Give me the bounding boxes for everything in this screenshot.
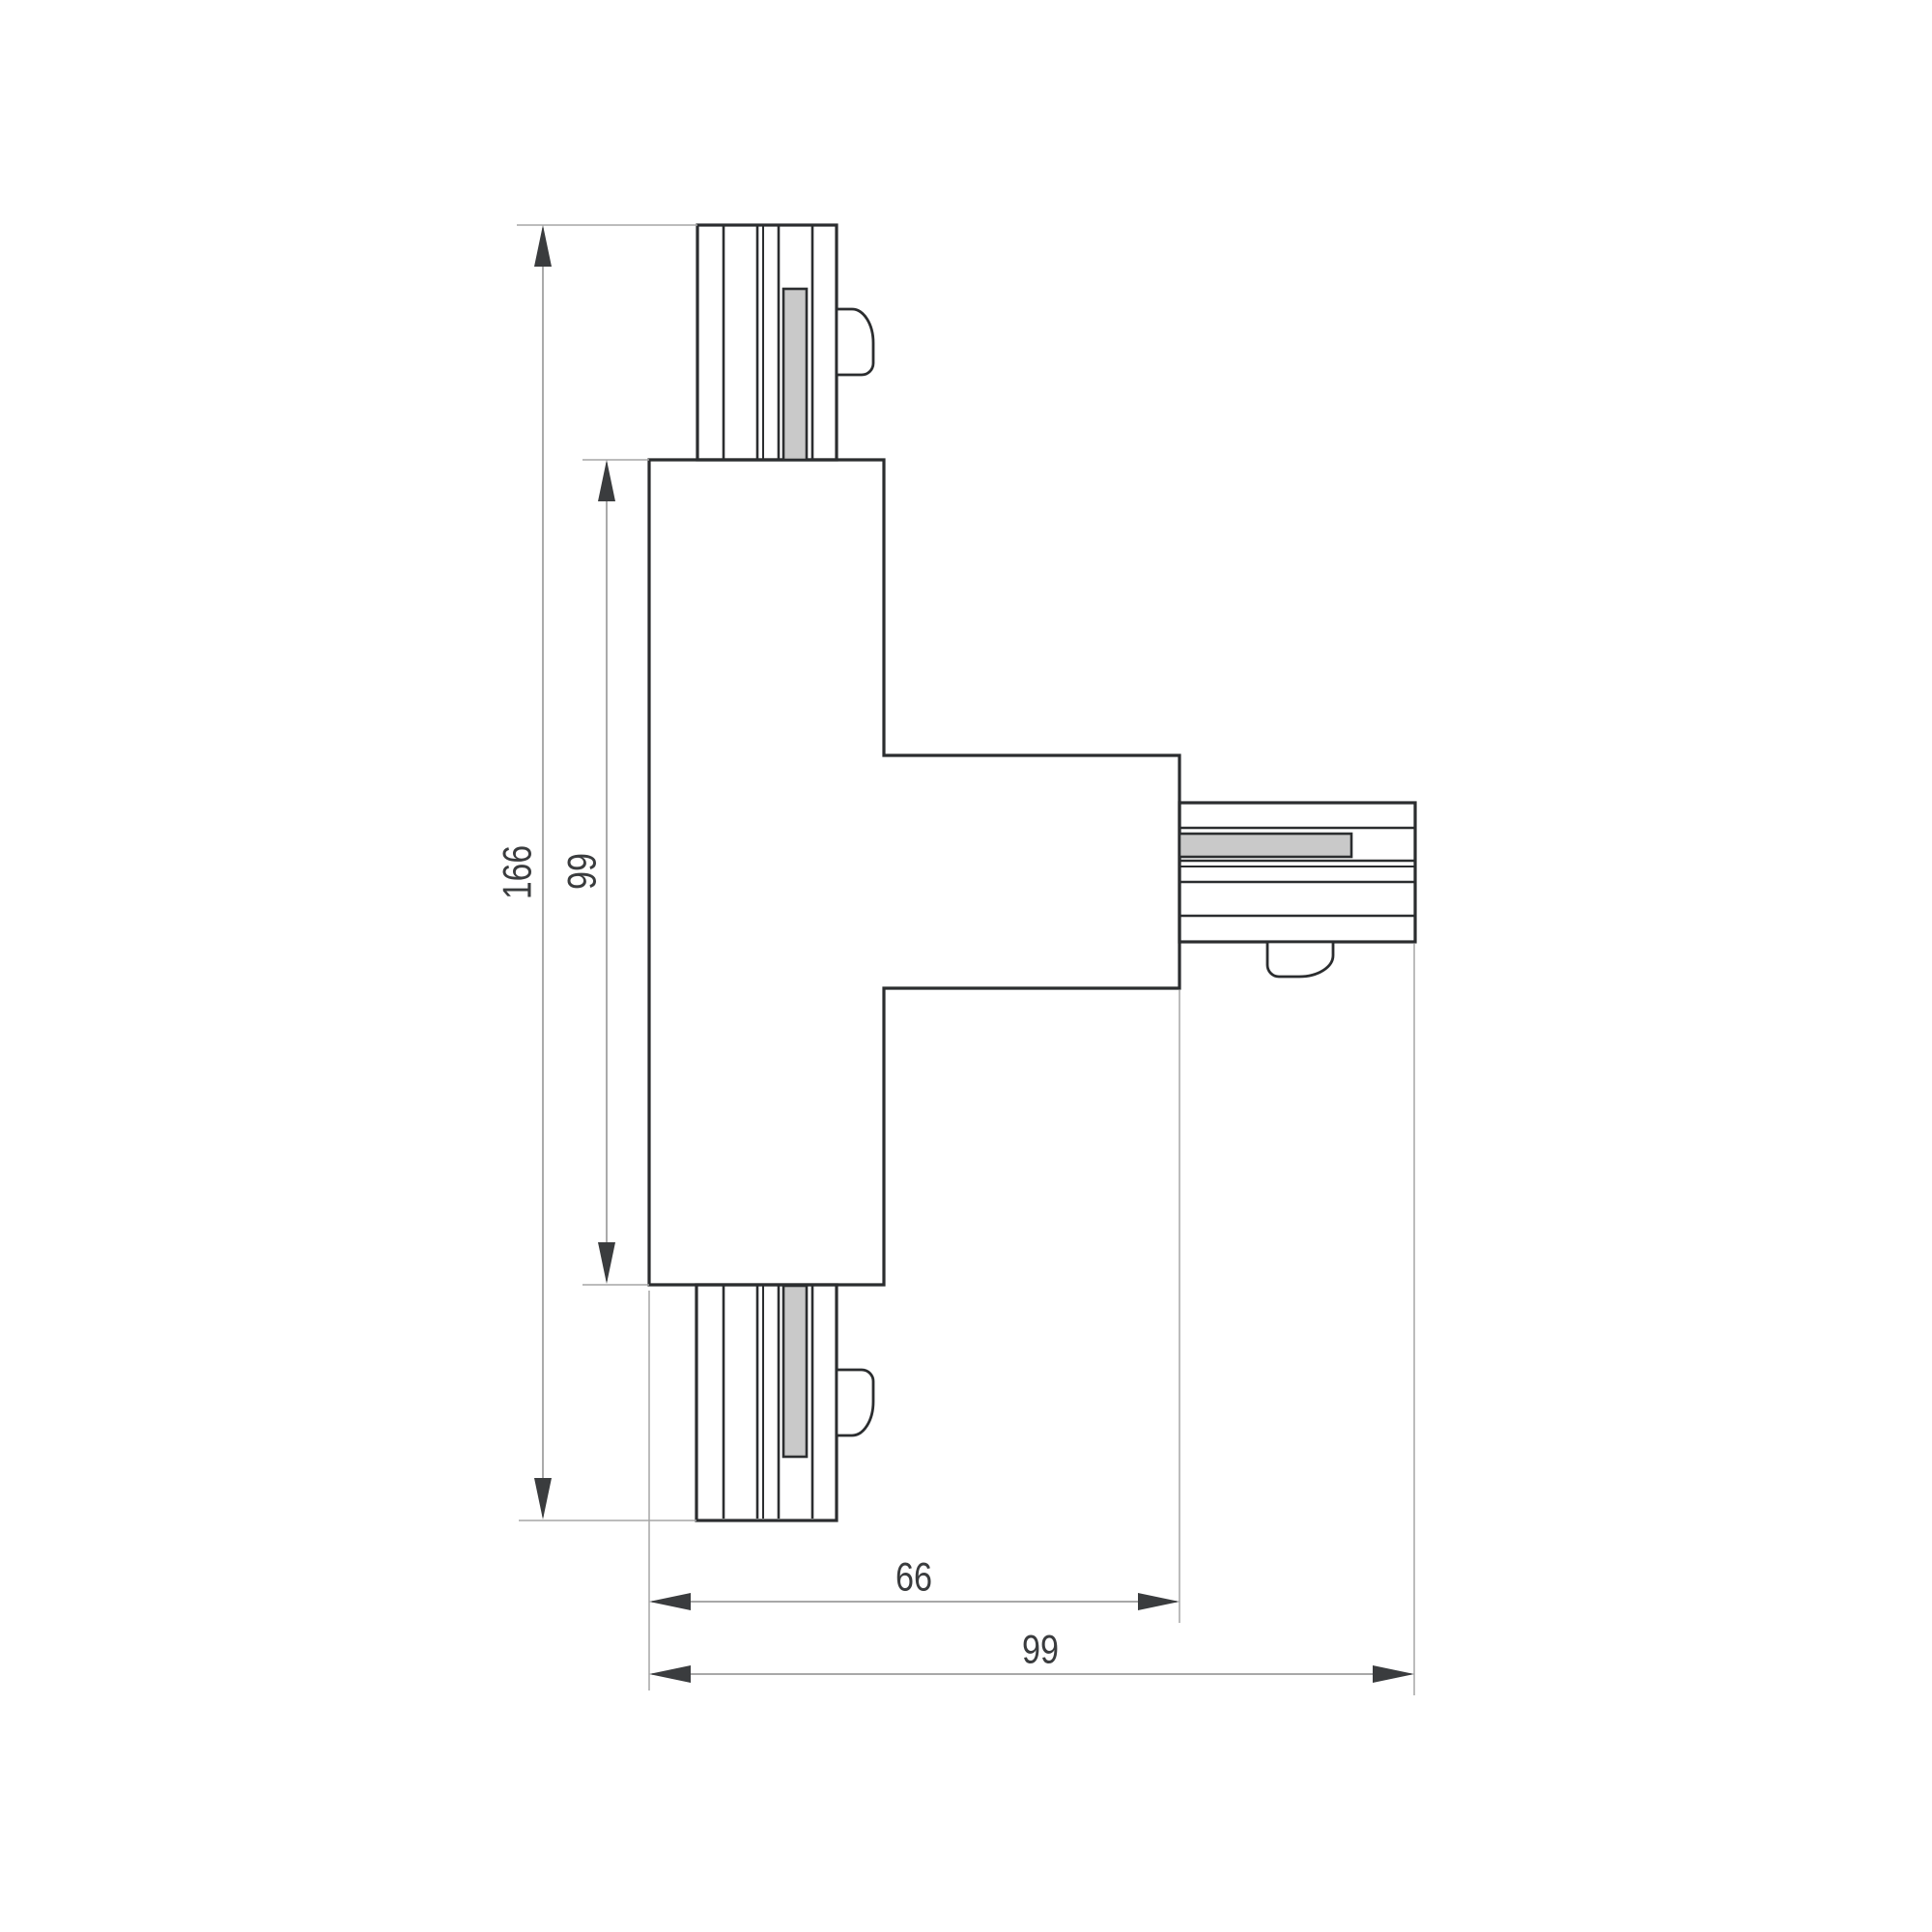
dim-overall-width-arrow-left <box>649 1665 691 1683</box>
bottom-connector <box>696 1285 873 1520</box>
dim-overall-height-arrow-down <box>534 1478 552 1520</box>
dim-arm-width: 66 <box>649 1554 1179 1611</box>
top-connector <box>697 225 873 460</box>
dim-overall-height-arrow-up <box>534 225 552 267</box>
top-connector-latch-tab <box>837 309 873 375</box>
dim-body-height-arrow-down <box>598 1242 615 1284</box>
t-connector-drawing: 166 99 66 99 <box>0 0 1932 1932</box>
dim-body-height: 99 <box>559 460 616 1284</box>
dim-arm-width-arrow-left <box>649 1593 691 1610</box>
top-connector-contact-strip <box>783 289 807 460</box>
t-body-outline <box>649 460 1179 1285</box>
bottom-connector-contact-strip <box>783 1286 807 1457</box>
right-connector-contact-strip <box>1179 834 1351 857</box>
dim-overall-height: 166 <box>495 225 553 1520</box>
dim-overall-width-label: 99 <box>1022 1627 1059 1672</box>
bottom-connector-housing <box>696 1285 837 1520</box>
right-connector-latch-tab <box>1267 942 1333 977</box>
dim-arm-width-label: 66 <box>895 1554 932 1600</box>
right-connector <box>1179 803 1415 977</box>
technical-drawing-canvas: 166 99 66 99 <box>0 0 1932 1932</box>
bottom-connector-latch-tab <box>837 1370 873 1435</box>
right-connector-housing <box>1179 803 1415 942</box>
dim-body-height-arrow-up <box>598 460 615 501</box>
dim-overall-width: 99 <box>649 1627 1414 1684</box>
top-connector-housing <box>697 225 837 460</box>
dim-overall-width-arrow-right <box>1373 1665 1414 1683</box>
dim-body-height-label: 99 <box>559 853 605 890</box>
dim-overall-height-label: 166 <box>495 845 540 899</box>
dim-arm-width-arrow-right <box>1138 1593 1179 1610</box>
